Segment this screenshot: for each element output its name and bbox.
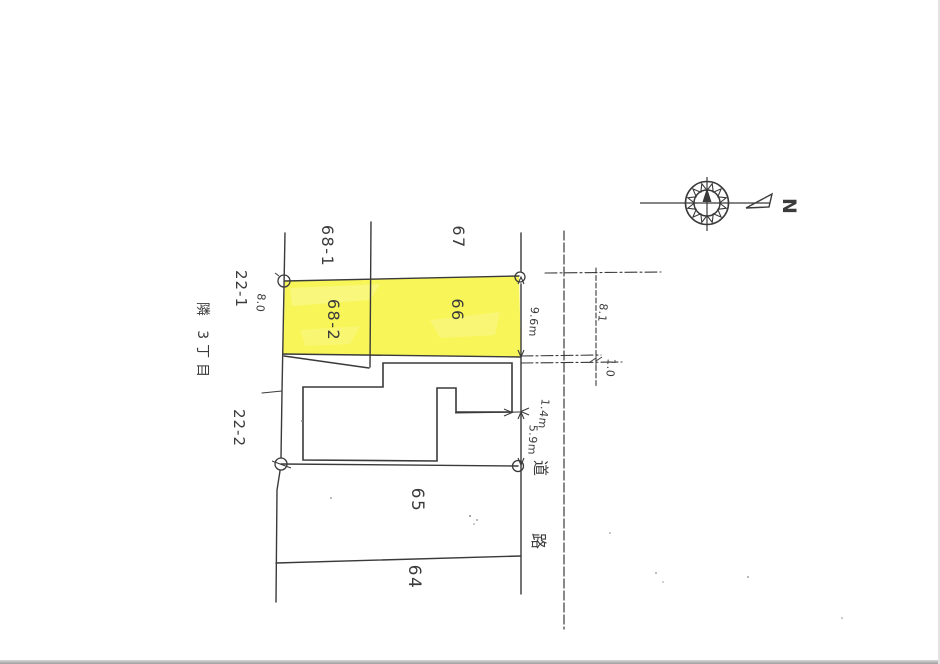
boundary-left-tick [262,391,282,393]
boundary-slant [284,356,369,368]
parcel-label-68-2: 68-2 [324,299,343,341]
district-label: 隣 3丁目 [194,302,210,382]
parcel-label-22-2: 22-2 [230,409,248,447]
surveyed-baseline [281,464,518,466]
north-label: N [778,198,800,214]
parcel-label-66: 66 [448,298,467,321]
road-label-kanji-1: 道 [531,460,550,476]
extension-line-top [545,272,661,273]
scanned-cadastral-map-page: { "parcels": { "p68_1": "68-1", "p67": "… [0,0,940,664]
road-dim-arrows [590,350,602,368]
survey-marker-tail [275,273,279,276]
parcel-label-22-1: 22-1 [232,270,250,308]
boundary-65-64 [276,556,521,563]
parcel-label-65: 65 [407,488,427,513]
parcel-label-64: 64 [404,565,424,590]
parcel-label-68-1: 68-1 [318,225,337,267]
north-arrow-flag [746,194,772,208]
building-outline [303,363,512,461]
measurement-frontage: 9.6m [526,306,541,337]
compass-rose [640,177,772,231]
highlighted-parcel [283,276,521,357]
road-label-kanji-2: 路 [529,533,548,549]
parcel-label-67: 67 [449,225,468,248]
boundary-left-lower [276,471,280,602]
measurement-left-width: 8.0 [253,293,268,313]
measurement-building-gap: 1.4m [535,398,552,430]
cadastral-map-drawing: 68-1 67 68-2 66 65 64 22-1 22-2 隣 3丁目 道 … [0,0,940,664]
measurement-road-upper: 8.1 [595,303,610,323]
scan-specks [301,420,843,619]
boundary-68-67-divider [370,222,371,367]
measurement-side-depth: 5.9m [525,424,540,455]
measurement-road-lower: 1.0 [603,358,618,378]
extension-line-mid-a [521,355,601,356]
